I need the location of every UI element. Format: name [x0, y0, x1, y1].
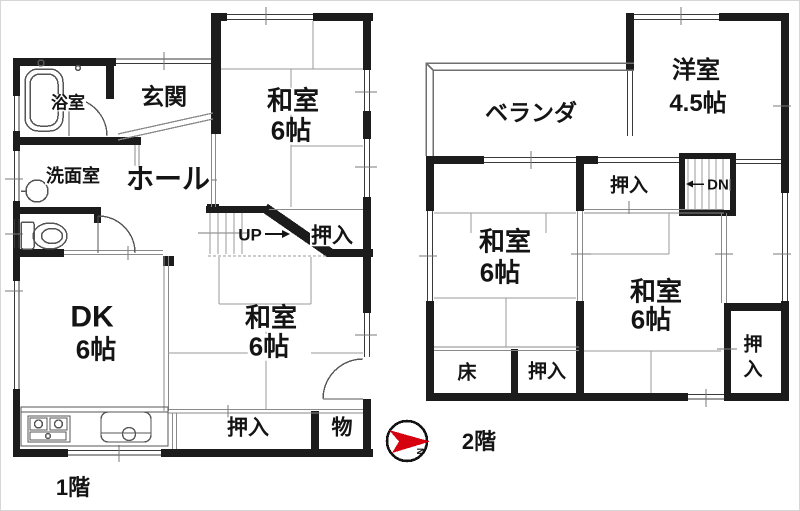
room-size-washitsu-w: 6帖 — [479, 260, 521, 287]
room-label-closet-e-1: 押 — [742, 335, 763, 354]
room-label-dk: DK — [69, 303, 114, 334]
washbasin-icon — [21, 180, 48, 202]
room-label-tokonoma: 床 — [456, 363, 477, 382]
stairs-up-label: UP — [237, 226, 263, 243]
room-size-dk: 6帖 — [75, 337, 117, 364]
room-label-washitsu-e: 和室 — [629, 279, 683, 306]
room-label-closet-s: 押入 — [226, 417, 270, 438]
room-label-yoshitsu: 洋室 — [671, 59, 721, 83]
room-label-entrance: 玄関 — [140, 85, 188, 108]
room-size-washitsu-ne: 6帖 — [270, 118, 312, 145]
room-label-washitsu-w: 和室 — [478, 229, 532, 256]
compass-letter: N — [415, 448, 425, 455]
stairs-dn-label: DN — [706, 177, 730, 192]
toilet-door — [98, 216, 135, 253]
kitchen-counter — [21, 407, 168, 446]
washitsu-door — [323, 359, 363, 399]
room-label-closet-n: 押入 — [609, 176, 649, 195]
room-label-veranda: ベランダ — [484, 101, 578, 124]
room-label-washitsu-s: 和室 — [244, 305, 298, 332]
room-size-washitsu-e: 6帖 — [630, 307, 672, 334]
floor1-title: 1階 — [55, 477, 91, 499]
stove-icon — [28, 416, 70, 442]
floor2-plan — [419, 7, 791, 407]
kitchen-sink-icon — [101, 412, 151, 442]
room-label-closet-mid: 押入 — [527, 362, 567, 381]
floorplan: N 浴室 玄関 和室 6帖 洗面室 ホール UP 押入 DK 6帖 和室 6帖 … — [0, 0, 800, 511]
room-label-washitsu-ne: 和室 — [266, 88, 320, 115]
partitions — [64, 113, 363, 449]
toilet-icon — [21, 222, 67, 249]
room-label-closet-stairs: 押入 — [310, 225, 354, 246]
room-label-hall: ホール — [125, 166, 211, 195]
room-label-closet-e-2: 入 — [742, 360, 763, 379]
floor2-title: 2階 — [461, 431, 497, 453]
up-arrow-icon — [265, 230, 290, 238]
room-label-washroom: 洗面室 — [45, 167, 101, 185]
room-label-storage: 物 — [331, 417, 354, 438]
room-size-washitsu-s: 6帖 — [248, 334, 290, 361]
compass-icon: N — [387, 421, 430, 461]
room-size-yoshitsu: 4.5帖 — [668, 92, 727, 116]
room-label-bathroom: 浴室 — [50, 94, 86, 111]
